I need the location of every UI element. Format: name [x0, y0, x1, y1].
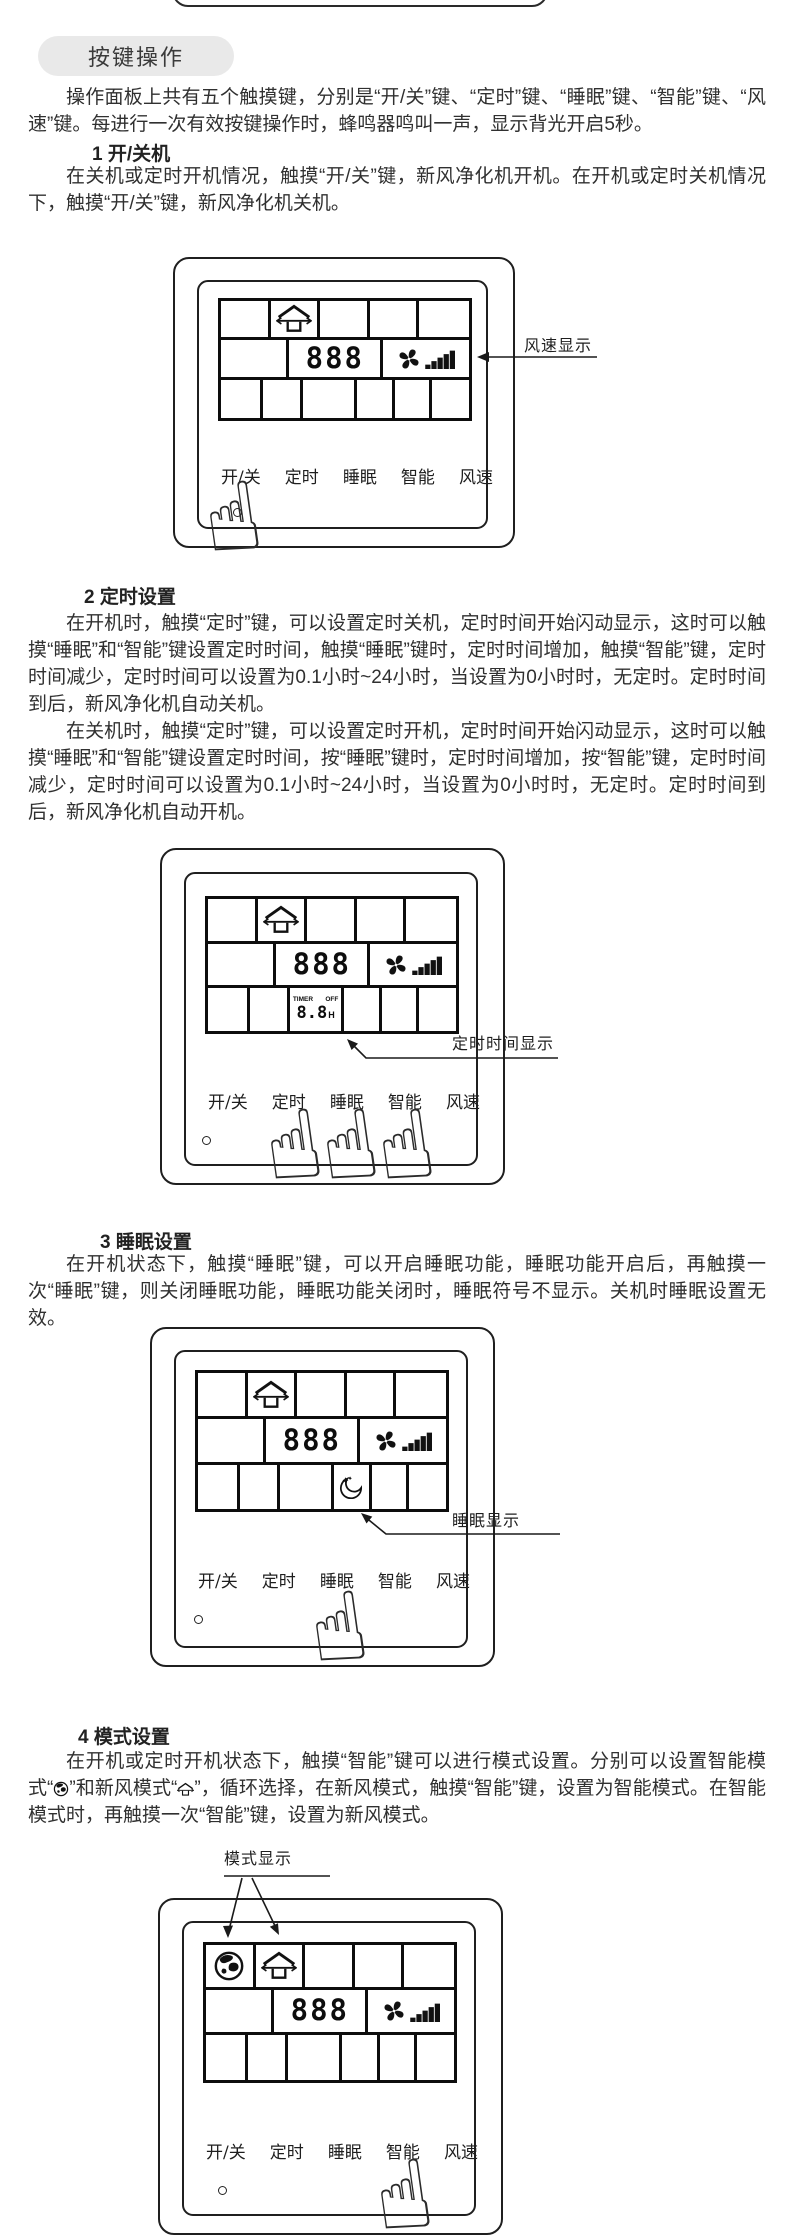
- timer-paragraphs: 在开机时，触摸“定时”键，可以设置定时关机，定时时间开始闪动显示，这时可以触摸“…: [28, 610, 766, 826]
- lcd-cell: [432, 380, 469, 418]
- key-speed: 风速: [436, 1567, 470, 1592]
- key-smart: 智能: [401, 463, 435, 488]
- intro-paragraph: 操作面板上共有五个触摸键，分别是“开/关”键、“定时”键、“睡眠”键、“智能”键…: [28, 84, 766, 138]
- house-airflow-icon: [263, 904, 299, 936]
- lcd-cell: [221, 380, 263, 418]
- lcd-cell: [368, 1990, 454, 2032]
- callout-sleep: 睡眠显示: [452, 1507, 520, 1531]
- globe-icon: [213, 1950, 245, 1982]
- fan-icon: [396, 346, 422, 372]
- lcd-cell: [288, 2035, 343, 2080]
- lcd-cell: [248, 1373, 298, 1416]
- lcd-cell: [240, 1465, 280, 1509]
- lcd-cell: [208, 944, 276, 985]
- lcd-cell: [344, 988, 381, 1031]
- lcd-cell: [271, 301, 321, 337]
- lcd-digits: 888: [276, 944, 370, 985]
- lcd-digits: 888: [289, 340, 383, 377]
- timer-unit: H: [328, 1010, 335, 1020]
- lcd-cell: [320, 301, 370, 337]
- mode-paragraph: 在开机或定时开机状态下，触摸“智能”键可以进行模式设置。分别可以设置智能模式“”…: [28, 1748, 766, 1829]
- house-airflow-icon: [276, 303, 312, 335]
- lcd-sleep-cell: [334, 1465, 371, 1509]
- sleep-paragraph: 在开机状态下，触摸“睡眠”键，可以开启睡眠功能，睡眠功能开启后，再触摸一次“睡眠…: [28, 1251, 766, 1332]
- key-timer: 定时: [270, 2138, 304, 2163]
- section-title: 按键操作: [88, 40, 184, 72]
- lcd-cell: [198, 1465, 240, 1509]
- wind-speed-bars-icon: [402, 1430, 434, 1451]
- key-timer: 定时: [262, 1567, 296, 1592]
- lcd-cell: [370, 301, 420, 337]
- wind-speed-bars-icon: [410, 2001, 442, 2022]
- key-speed: 风速: [459, 463, 493, 488]
- lcd-cell: [250, 988, 290, 1031]
- section-title-pill: 按键操作: [38, 36, 234, 76]
- lcd-cell: [307, 899, 357, 941]
- house-airflow-icon: [177, 1782, 194, 1797]
- lcd-cell: [208, 988, 250, 1031]
- lcd-cell: [417, 2035, 454, 2080]
- heading-sleep: 3 睡眠设置: [100, 1227, 192, 1254]
- key-power: 开/关: [208, 1088, 248, 1113]
- indicator-dot: [202, 1136, 211, 1145]
- lcd-cell: [280, 1465, 335, 1509]
- lcd-digits: 888: [274, 1990, 368, 2032]
- timer-value: 8.8: [296, 1003, 327, 1023]
- lcd-cell: [395, 380, 432, 418]
- lcd-digits: 888: [266, 1419, 360, 1462]
- lcd-cell: [221, 340, 289, 377]
- key-sleep: 睡眠: [328, 2138, 362, 2163]
- lcd-cell: [419, 988, 456, 1031]
- lcd-timer-cell: TIMER OFF 8.8 H: [290, 988, 345, 1031]
- control-panel-figure-mode: 888 开/关 定时 睡眠 智能 风速: [158, 1898, 503, 2235]
- wind-speed-bars-icon: [412, 954, 444, 975]
- lcd-cell: [297, 1373, 347, 1416]
- callout-timer-time: 定时时间显示: [452, 1030, 554, 1054]
- lcd-cell: [355, 1945, 405, 1987]
- lcd-cell: [263, 380, 303, 418]
- timer-label: TIMER: [293, 996, 313, 1003]
- lcd-cell: [342, 2035, 379, 2080]
- lcd-cell: [380, 2035, 417, 2080]
- lcd-cell: [409, 1465, 446, 1509]
- lcd-cell: [208, 899, 258, 941]
- globe-icon: [53, 1781, 69, 1797]
- lcd-cell: [404, 1945, 454, 1987]
- lcd-display: 888 TIMER OFF 8.8: [205, 896, 459, 1034]
- moon-icon: [339, 1475, 363, 1499]
- lcd-cell: [360, 1419, 446, 1462]
- house-airflow-icon: [261, 1950, 297, 1982]
- lcd-cell: [198, 1373, 248, 1416]
- manual-page: 按键操作 操作面板上共有五个触摸键，分别是“开/关”键、“定时”键、“睡眠”键、…: [0, 0, 790, 2239]
- lcd-cell: [198, 1419, 266, 1462]
- indicator-dot: [218, 2186, 227, 2195]
- lcd-cell: [347, 1373, 397, 1416]
- key-smart: 智能: [378, 1567, 412, 1592]
- key-speed: 风速: [444, 2138, 478, 2163]
- wind-speed-bars-icon: [425, 348, 457, 369]
- previous-figure-bottom-edge: [172, 0, 548, 7]
- lcd-display: 888: [195, 1370, 449, 1512]
- lcd-cell: [357, 380, 394, 418]
- lcd-cell: [383, 340, 469, 377]
- lcd-cell: [419, 301, 469, 337]
- lcd-cell: [206, 1990, 274, 2032]
- house-airflow-icon: [253, 1379, 289, 1411]
- lcd-cell: [372, 1465, 409, 1509]
- lcd-cell: [221, 301, 271, 337]
- indicator-dot: [194, 1615, 203, 1624]
- touch-key-row: 开/关 定时 睡眠 智能 风速: [221, 463, 493, 488]
- heading-timer: 2 定时设置: [84, 582, 176, 609]
- lcd-cell: [258, 899, 308, 941]
- key-power: 开/关: [206, 2138, 246, 2163]
- callout-mode: 模式显示: [224, 1845, 292, 1869]
- lcd-cell: [206, 2035, 248, 2080]
- heading-mode: 4 模式设置: [78, 1722, 170, 1749]
- timer-off-label: OFF: [325, 996, 338, 1003]
- power-paragraph: 在关机或定时开机情况，触摸“开/关”键，新风净化机开机。在开机或定时关机情况下，…: [28, 163, 766, 217]
- lcd-cell: [305, 1945, 355, 1987]
- callout-fan-speed: 风速显示: [524, 332, 592, 356]
- lcd-cell: [396, 1373, 446, 1416]
- key-sleep: 睡眠: [343, 463, 377, 488]
- key-timer: 定时: [285, 463, 319, 488]
- lcd-smart-cell: [206, 1945, 256, 1987]
- fan-icon: [381, 1998, 407, 2024]
- lcd-cell: [357, 899, 407, 941]
- lcd-cell: [248, 2035, 288, 2080]
- lcd-cell: [303, 380, 358, 418]
- key-power: 开/关: [198, 1567, 238, 1592]
- lcd-cell: [256, 1945, 306, 1987]
- lcd-cell: [370, 944, 456, 985]
- lcd-cell: [382, 988, 419, 1031]
- lcd-display: 888: [203, 1942, 457, 2083]
- fan-icon: [373, 1428, 399, 1454]
- lcd-display: 888: [218, 298, 472, 421]
- heading-power: 1 开/关机: [92, 139, 170, 166]
- touch-key-row: 开/关 定时 睡眠 智能 风速: [206, 2138, 478, 2163]
- lcd-cell: [406, 899, 456, 941]
- fan-icon: [383, 952, 409, 978]
- key-speed: 风速: [446, 1088, 480, 1113]
